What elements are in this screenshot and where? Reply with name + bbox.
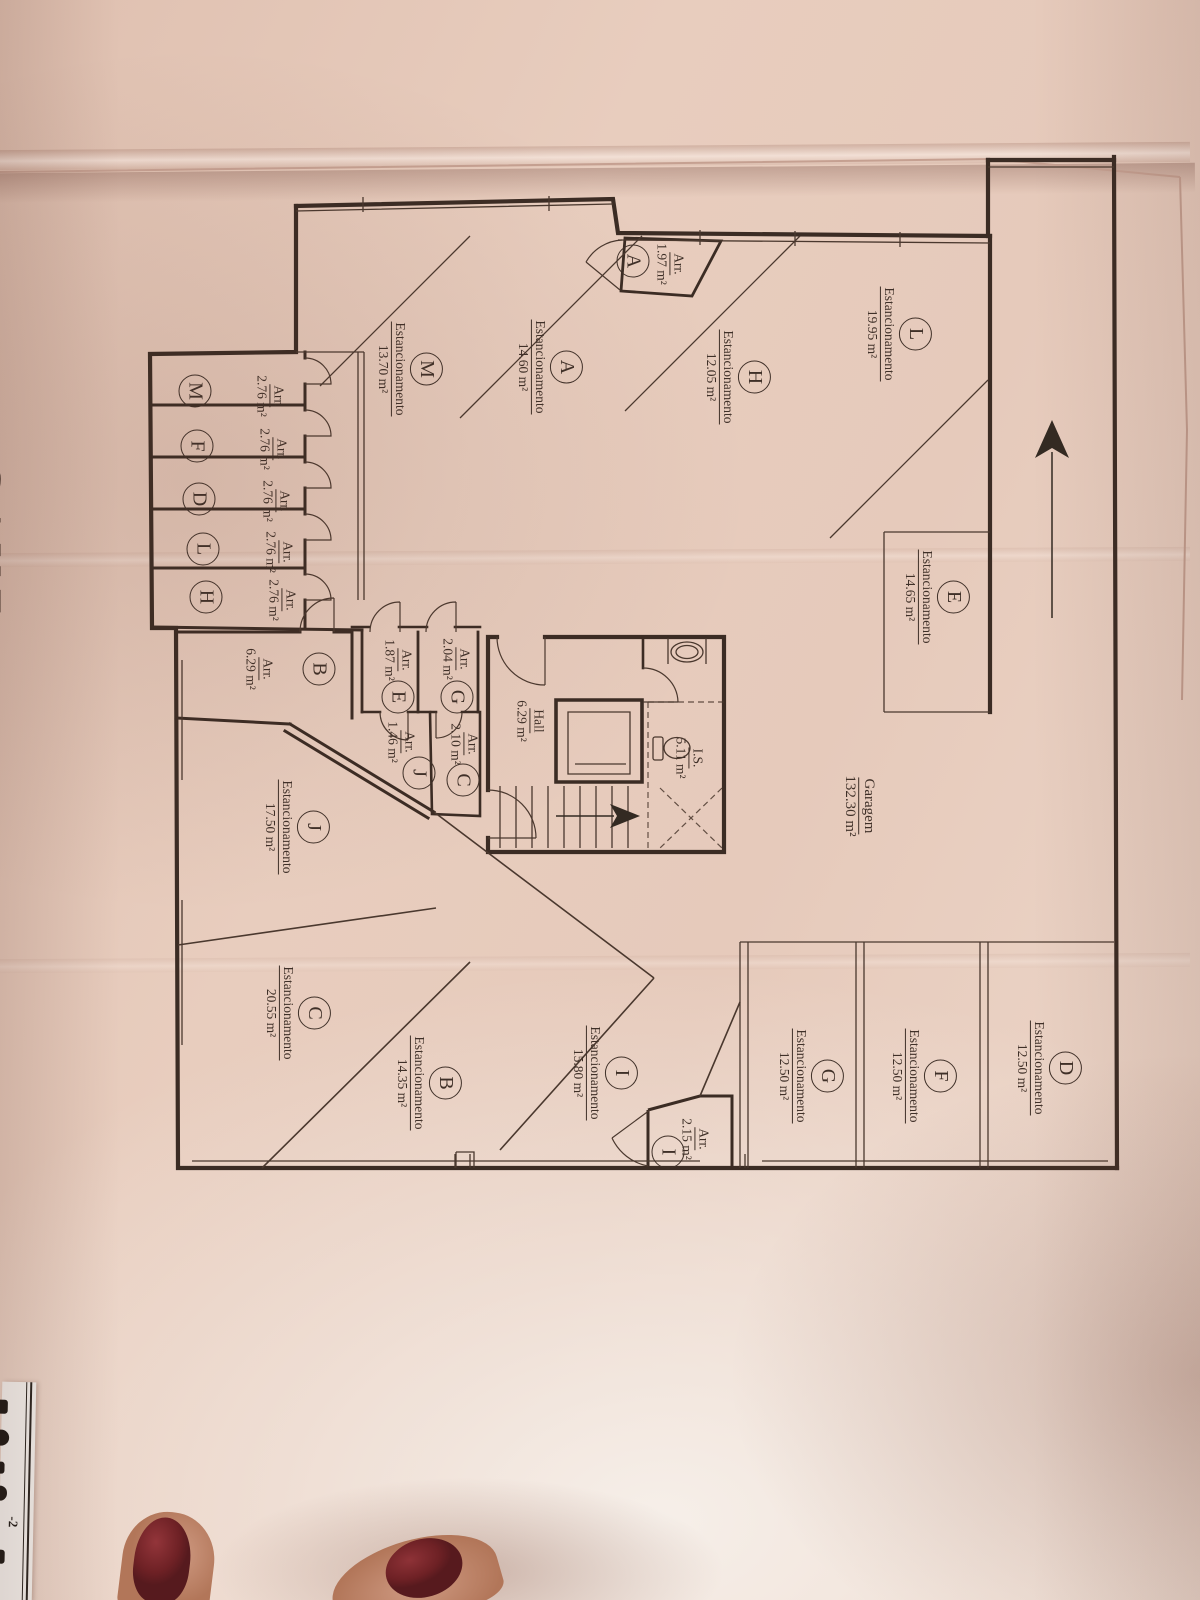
parking-label-C: C Estancionamento 20.55 m² (263, 966, 331, 1061)
space-badge-D: D (1049, 1051, 1082, 1084)
space-badge-I: I (605, 1056, 638, 1089)
storage-badge-G: G (441, 681, 474, 714)
parking-label-E: E Estancionamento 14.65 m² (902, 550, 970, 645)
parking-label-H: H Estancionamento 12.05 m² (703, 330, 771, 425)
storage-badge-B: B (303, 653, 336, 686)
elevator-car (568, 712, 630, 774)
garage-label: Garagem 132.30 m² (841, 775, 877, 836)
storage-badge-M: M (179, 375, 212, 408)
floor-title: CAVE (0, 461, 13, 628)
paper-edge-lines (0, 159, 1187, 700)
storage-label-B: Arr. 6.29 m² (243, 648, 276, 690)
floor-plan-drawing (0, 0, 1200, 1600)
photo-of-floor-plan: CAVE L Estancionamento 19.95 m² H Estanc… (0, 0, 1200, 1600)
space-badge-E: E (937, 580, 970, 613)
space-badge-H: H (738, 360, 771, 393)
storage-label-C: Arr. 2.10 m² (448, 723, 481, 765)
storage-label-F: Arr. 2.76 m² (257, 428, 290, 470)
print-fragments (0, 1550, 5, 1564)
storage-badge-J: J (403, 757, 436, 790)
space-badge-A: A (550, 350, 583, 383)
print-fragments (0, 1400, 8, 1414)
space-badge-M: M (410, 352, 443, 385)
storage-label-G: Arr. 2.04 m² (440, 638, 473, 680)
storage-badge-I: I (652, 1136, 685, 1169)
space-badge-F: F (924, 1059, 957, 1092)
wall-pillar (456, 1152, 474, 1168)
storage-badge-D: D (183, 483, 216, 516)
print-fragments (0, 1486, 7, 1501)
fragment-text: -2 (5, 1516, 21, 1527)
storage-label-E: Arr. 1.87 m² (382, 639, 415, 681)
parking-label-D: D Estancionamento 12.50 m² (1014, 1021, 1082, 1116)
titleblock-border-line (26, 1382, 33, 1600)
parking-label-L: L Estancionamento 19.95 m² (864, 287, 932, 382)
fingernail (129, 1514, 195, 1600)
storage-badge-H: H (190, 581, 223, 614)
parking-label-G: G Estancionamento 12.50 m² (776, 1029, 844, 1124)
space-badge-C: C (298, 996, 331, 1029)
space-badge-G: G (811, 1059, 844, 1092)
print-fragments (0, 1462, 5, 1474)
print-fragments (0, 1430, 9, 1446)
ramp-direction-arrow (1035, 420, 1069, 618)
wc-label: I.S. 5.11 m² (673, 737, 706, 778)
space-badge-L: L (899, 317, 932, 350)
storage-badge-F: F (181, 430, 214, 463)
storage-badge-E: E (382, 681, 415, 714)
parking-label-J: J Estancionamento 17.50 m² (262, 780, 330, 875)
storage-label-M: Arr. 2.76 m² (254, 375, 287, 417)
storage-label-A: Arr. 1.97 m² (654, 243, 687, 285)
storage-badge-C: C (447, 764, 480, 797)
storage-label-H: Arr. 2.76 m² (266, 579, 299, 621)
space-badge-B: B (429, 1066, 462, 1099)
parking-label-M: M Estancionamento 13.70 m² (375, 322, 443, 417)
storage-label-D: Arr. 2.76 m² (260, 480, 293, 522)
parking-label-I: I Estancionamento 15.80 m² (570, 1026, 638, 1121)
adjacent-titleblock-fragment: -2 (0, 1382, 36, 1600)
parking-label-F: F Estancionamento 12.50 m² (889, 1029, 957, 1124)
space-badge-J: J (297, 810, 330, 843)
parking-label-B: B Estancionamento 14.35 m² (394, 1036, 462, 1131)
storage-badge-L: L (187, 533, 220, 566)
parking-label-A: A Estancionamento 14.60 m² (515, 320, 583, 415)
sink-icon (668, 638, 706, 664)
hall-label: Hall 6.29 m² (514, 700, 547, 742)
storage-badge-A: A (617, 245, 650, 278)
stairs (500, 786, 628, 848)
storage-label-L: Arr. 2.76 m² (263, 531, 296, 573)
